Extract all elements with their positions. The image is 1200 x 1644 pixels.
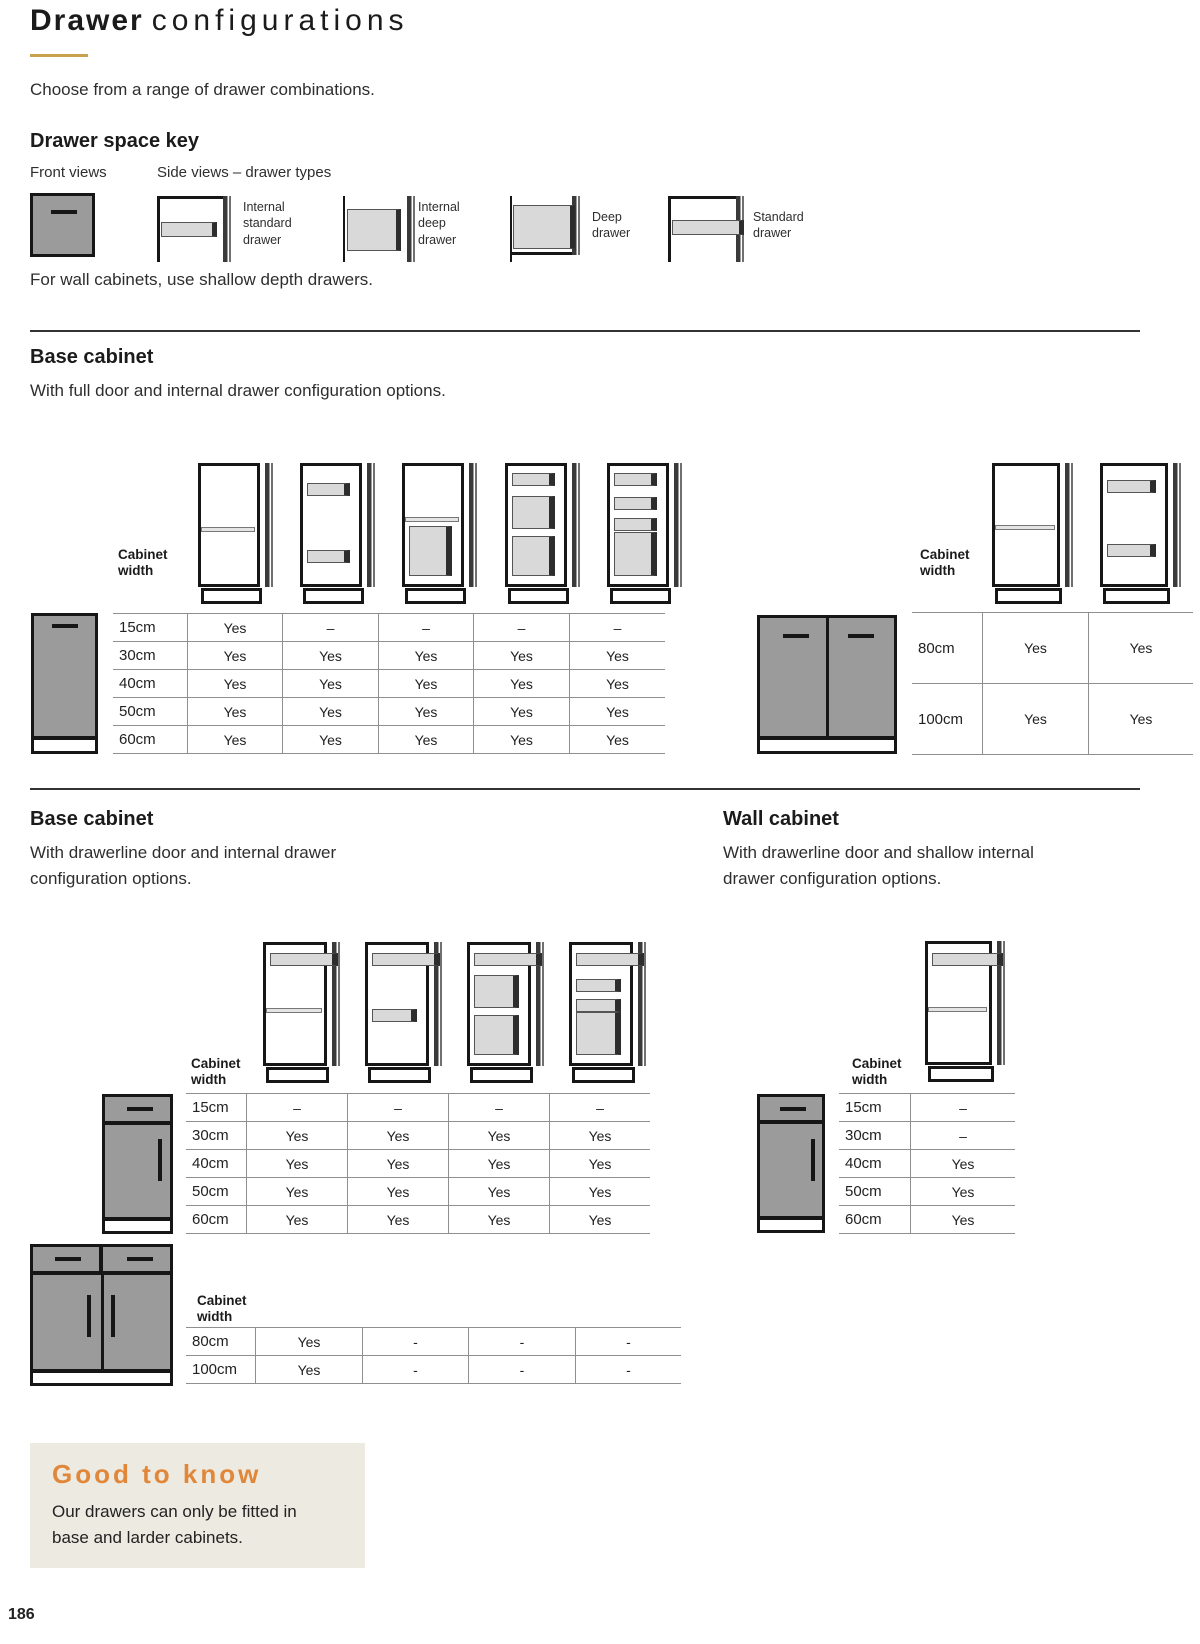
front-view-drawerline-door <box>102 1122 173 1220</box>
row-label: 60cm <box>186 1205 246 1233</box>
cell-value: – <box>347 1093 448 1121</box>
cell-value: Yes <box>246 1205 347 1233</box>
door-panel <box>572 463 580 587</box>
cell-value: Yes <box>187 641 282 669</box>
cell-value: Yes <box>910 1177 1015 1205</box>
page-title-bold: Drawer <box>30 4 144 37</box>
cabinet-side-diagram-drawerline-deep-deep <box>467 942 544 1083</box>
drawerline-config-table: 15cm––––30cmYesYesYesYes40cmYesYesYesYes… <box>186 1093 650 1234</box>
cabinet-side-diagram-three-standard-deep <box>607 463 682 604</box>
wall-config-table: 15cm–30cm–40cmYes50cmYes60cmYes <box>839 1093 1015 1234</box>
handle-dash <box>783 634 809 638</box>
side-views-label: Side views – drawer types <box>157 164 331 181</box>
row-label: 15cm <box>113 613 187 641</box>
cell-value: Yes <box>448 1177 549 1205</box>
section-divider <box>30 330 1140 332</box>
good-to-know-heading: Good to know <box>52 1459 261 1490</box>
cell-value: Yes <box>1088 612 1193 683</box>
cell-value: Yes <box>187 697 282 725</box>
catalog-page: Drawerconfigurations Choose from a range… <box>0 0 1200 1644</box>
handle-dash <box>811 1139 815 1181</box>
cell-value: Yes <box>982 612 1088 683</box>
door-panel <box>367 463 375 587</box>
plinth <box>266 1067 329 1083</box>
cell-value: - <box>575 1327 681 1355</box>
handle-dash <box>55 1257 81 1261</box>
page-number: 186 <box>8 1606 35 1624</box>
cabinet-width-label: Cabinet width <box>920 547 970 579</box>
cell-value: Yes <box>282 641 378 669</box>
cabinet-side-diagram-drawerline-shelf <box>263 942 340 1083</box>
cabinet-side-diagram-two-standard <box>300 463 375 604</box>
cell-value: Yes <box>473 669 569 697</box>
cell-value: – <box>448 1093 549 1121</box>
cabinet-side-diagram-standard-two-deep <box>505 463 580 604</box>
front-view-wall-drawer <box>757 1094 825 1123</box>
key-note: For wall cabinets, use shallow depth dra… <box>30 267 373 293</box>
section-wall-subheading: With drawerline door and shallow interna… <box>723 840 1034 891</box>
cabinet-side-diagram-drawerline-standard <box>365 942 442 1083</box>
cabinet-side-diagram-two-standard <box>1100 463 1181 604</box>
plinth <box>757 737 897 754</box>
page-subtitle: Choose from a range of drawer combinatio… <box>30 80 375 100</box>
door-panel <box>265 463 273 587</box>
front-view-double-drawerline-drawer <box>30 1244 102 1274</box>
cell-value: Yes <box>187 613 282 641</box>
front-view-double-drawerline-drawer <box>100 1244 173 1274</box>
cell-value: Yes <box>473 725 569 753</box>
cell-value: Yes <box>549 1121 650 1149</box>
cell-value: Yes <box>282 697 378 725</box>
row-label: 80cm <box>912 612 982 683</box>
door-panel <box>469 463 477 587</box>
cell-value: – <box>246 1093 347 1121</box>
cell-value: – <box>282 613 378 641</box>
section-full-door-heading: Base cabinet <box>30 346 153 369</box>
door-split <box>101 1275 104 1369</box>
cell-value: Yes <box>347 1149 448 1177</box>
handle-dash <box>52 624 78 628</box>
cell-value: Yes <box>246 1121 347 1149</box>
front-view-drawerline-drawer <box>102 1094 173 1124</box>
section-wall-heading: Wall cabinet <box>723 808 839 831</box>
row-label: 80cm <box>186 1327 255 1355</box>
plinth <box>30 1370 173 1386</box>
row-label: 50cm <box>839 1177 910 1205</box>
key-diagram-standard-drawer <box>668 196 750 262</box>
cell-value: Yes <box>473 641 569 669</box>
cell-value: Yes <box>549 1205 650 1233</box>
cell-value: Yes <box>448 1205 549 1233</box>
cabinet-width-label: Cabinet width <box>852 1056 902 1088</box>
cell-value: - <box>575 1355 681 1383</box>
cell-value: Yes <box>448 1149 549 1177</box>
row-label: 40cm <box>113 669 187 697</box>
plinth <box>1103 588 1170 604</box>
plinth <box>102 1218 173 1234</box>
cabinet-width-label: Cabinet width <box>118 547 168 579</box>
cell-value: Yes <box>246 1149 347 1177</box>
cell-value: - <box>362 1327 468 1355</box>
front-view-double-drawerline-doors <box>30 1272 173 1372</box>
key-diagram-internal-deep-drawer <box>343 196 421 262</box>
cell-value: - <box>468 1327 575 1355</box>
cell-value: Yes <box>569 641 665 669</box>
handle-dash <box>780 1107 806 1111</box>
plinth <box>31 737 98 754</box>
row-label: 30cm <box>186 1121 246 1149</box>
cell-value: Yes <box>347 1205 448 1233</box>
cell-value: Yes <box>378 697 473 725</box>
door-panel <box>1065 463 1073 587</box>
row-label: 40cm <box>186 1149 246 1177</box>
section-drawerline-heading: Base cabinet <box>30 808 153 831</box>
cell-value: Yes <box>255 1355 362 1383</box>
plinth <box>508 588 569 604</box>
plinth <box>610 588 671 604</box>
row-label: 60cm <box>839 1205 910 1233</box>
cell-value: Yes <box>282 669 378 697</box>
plinth <box>928 1066 994 1082</box>
section-full-door-subheading: With full door and internal drawer confi… <box>30 378 446 404</box>
door-split <box>826 618 829 736</box>
key-heading: Drawer space key <box>30 130 199 153</box>
key-diagram-deep-drawer <box>510 196 586 262</box>
cell-value: Yes <box>910 1149 1015 1177</box>
key-label-standard: Standard drawer <box>753 209 833 242</box>
cell-value: Yes <box>448 1121 549 1149</box>
cell-value: Yes <box>246 1177 347 1205</box>
row-label: 100cm <box>912 683 982 754</box>
cell-value: - <box>362 1355 468 1383</box>
row-label: 15cm <box>186 1093 246 1121</box>
cell-value: Yes <box>982 683 1088 754</box>
handle-dash <box>127 1107 153 1111</box>
row-label: 30cm <box>113 641 187 669</box>
row-label: 50cm <box>186 1177 246 1205</box>
handle-dash <box>848 634 874 638</box>
cell-value: Yes <box>378 669 473 697</box>
cell-value: Yes <box>569 669 665 697</box>
section-divider <box>30 788 1140 790</box>
cell-value: – <box>910 1121 1015 1149</box>
front-view-diagram <box>30 193 95 257</box>
handle-dash <box>87 1295 91 1337</box>
cell-value: Yes <box>910 1205 1015 1233</box>
cell-value: – <box>549 1093 650 1121</box>
cell-value: – <box>378 613 473 641</box>
plinth <box>470 1067 533 1083</box>
door-panel <box>1173 463 1181 587</box>
page-title-light: configurations <box>152 4 409 37</box>
plinth <box>995 588 1062 604</box>
key-label-internal-standard: Internal standard drawer <box>243 199 333 248</box>
plinth <box>757 1217 825 1233</box>
cabinet-side-diagram-drawerline-std-std-deep <box>569 942 646 1083</box>
cell-value: Yes <box>187 669 282 697</box>
cabinet-side-diagram-shelf <box>198 463 273 604</box>
section-drawerline-subheading: With drawerline door and internal drawer… <box>30 840 336 891</box>
cell-value: – <box>473 613 569 641</box>
cabinet-side-diagram-wall-drawerline <box>925 941 1005 1082</box>
good-to-know-body: Our drawers can only be fitted in base a… <box>52 1499 297 1552</box>
row-label: 50cm <box>113 697 187 725</box>
cabinet-side-diagram-shelf <box>992 463 1073 604</box>
cell-value: Yes <box>187 725 282 753</box>
cell-value: Yes <box>255 1327 362 1355</box>
cabinet-side-diagram-shelf-deep <box>402 463 477 604</box>
drawerline-wide-config-table: 80cmYes---100cmYes--- <box>186 1327 681 1384</box>
cell-value: Yes <box>569 697 665 725</box>
key-label-deep: Deep drawer <box>592 209 662 242</box>
cell-value: Yes <box>549 1177 650 1205</box>
cell-value: Yes <box>569 725 665 753</box>
cell-value: Yes <box>282 725 378 753</box>
row-label: 100cm <box>186 1355 255 1383</box>
plinth <box>405 588 466 604</box>
cell-value: Yes <box>378 725 473 753</box>
handle-dash <box>158 1139 162 1181</box>
plinth <box>303 588 364 604</box>
page-title: Drawerconfigurations <box>30 4 409 38</box>
row-label: 15cm <box>839 1093 910 1121</box>
full-door-config-table: 15cmYes––––30cmYesYesYesYesYes40cmYesYes… <box>113 613 665 754</box>
key-diagram-internal-standard-drawer <box>157 196 237 262</box>
cell-value: Yes <box>378 641 473 669</box>
cell-value: Yes <box>1088 683 1193 754</box>
cell-value: Yes <box>347 1121 448 1149</box>
cabinet-width-label: Cabinet width <box>191 1056 241 1088</box>
plinth <box>201 588 262 604</box>
handle-dash <box>111 1295 115 1337</box>
row-label: 60cm <box>113 725 187 753</box>
cell-value: - <box>468 1355 575 1383</box>
front-views-label: Front views <box>30 164 107 181</box>
handle-dash <box>51 210 77 214</box>
cell-value: – <box>569 613 665 641</box>
cell-value: Yes <box>347 1177 448 1205</box>
cell-value: Yes <box>473 697 569 725</box>
front-view-wall-door <box>757 1121 825 1219</box>
row-label: 30cm <box>839 1121 910 1149</box>
row-label: 40cm <box>839 1149 910 1177</box>
plinth <box>368 1067 431 1083</box>
plinth <box>572 1067 635 1083</box>
key-label-internal-deep: Internal deep drawer <box>418 199 498 248</box>
good-to-know-box: Good to know Our drawers can only be fit… <box>30 1443 365 1568</box>
handle-dash <box>127 1257 153 1261</box>
accent-rule <box>30 54 88 57</box>
cabinet-width-label: Cabinet width <box>197 1293 247 1325</box>
front-view-double-door-cabinet <box>757 615 897 739</box>
cell-value: – <box>910 1093 1015 1121</box>
full-door-wide-config-table: 80cmYesYes100cmYesYes <box>912 612 1193 755</box>
front-view-narrow-cabinet <box>31 613 98 739</box>
cell-value: Yes <box>549 1149 650 1177</box>
door-panel <box>674 463 682 587</box>
